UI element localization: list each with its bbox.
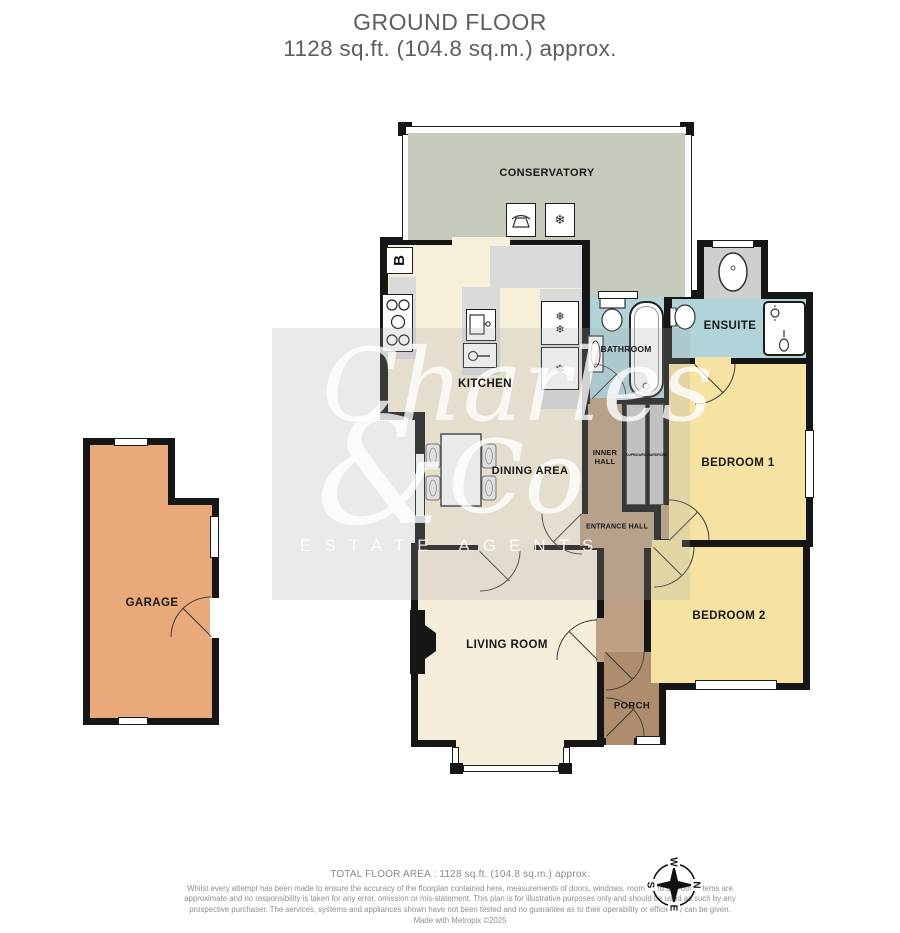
label-living-room: LIVING ROOM (466, 639, 548, 651)
opening-living-hall (596, 618, 604, 662)
counter-top (490, 246, 582, 288)
washer-glyph (509, 209, 533, 231)
door-arc (606, 652, 644, 690)
window-bedroom2-bottom (695, 680, 777, 690)
window-porch-bottom (636, 736, 661, 745)
label-kitchen: KITCHEN (458, 378, 512, 390)
label-bedroom1: BEDROOM 1 (701, 457, 774, 469)
opening-conservatory-kitchen (452, 237, 510, 246)
bay-window-floor (459, 747, 563, 765)
wall-bay-nub-right (559, 763, 572, 774)
snowflake-icon: ❄ (555, 311, 564, 322)
plan-title: GROUND FLOOR 1128 sq.ft. (104.8 sq.m.) a… (0, 9, 900, 62)
sink-icon (719, 253, 747, 291)
watermark-ampersand: & (316, 398, 448, 546)
opening-porch-front (606, 738, 634, 745)
window-bay-bottom (463, 765, 559, 772)
label-inner-hall: INNER HALL (586, 448, 624, 466)
window-bathroom-top (598, 291, 638, 299)
window-ensuite-top (712, 240, 754, 248)
toilet-icon (675, 305, 695, 329)
compass-west: W (668, 857, 679, 867)
label-conservatory: CONSERVATORY (499, 167, 594, 179)
label-ensuite: ENSUITE (704, 320, 757, 332)
title-area: 1128 sq.ft. (104.8 sq.m.) approx. (0, 36, 900, 62)
compass-south: S (645, 882, 656, 889)
door-arc (557, 620, 597, 660)
fireplace-icon (410, 610, 438, 674)
floor-plan-page: GROUND FLOOR 1128 sq.ft. (104.8 sq.m.) a… (0, 0, 900, 933)
conservatory-freezer-icon: ❄ (545, 203, 575, 237)
boiler-icon: B (386, 247, 413, 274)
window-garage-right (210, 516, 219, 558)
watermark-subtitle: ESTATE AGENTS (300, 536, 606, 556)
label-dining-area: DINING AREA (492, 465, 569, 477)
label-garage: GARAGE (126, 597, 179, 609)
compass-east: E (668, 905, 679, 912)
label-porch: PORCH (614, 701, 650, 712)
room-garage-floor-a (90, 445, 168, 718)
toilet-cistern (600, 298, 625, 308)
watermark-word2: Co (448, 428, 585, 528)
label-bathroom: BATHROOM (600, 344, 651, 354)
boiler-letter: B (391, 255, 408, 266)
opening-bay (456, 738, 564, 747)
compass-rose: W N E S (643, 854, 705, 916)
window-garage-bottom (118, 717, 148, 725)
compass-north: N (691, 881, 702, 888)
window-bedroom1-right (805, 430, 814, 498)
snowflake-icon: ❄ (555, 214, 566, 227)
label-wardrobe: WARDROBE (647, 453, 668, 457)
label-entrance-hall: ENTRANCE HALL (586, 524, 648, 531)
window-garage-top (114, 438, 148, 446)
metropix-credit: Made with Metropix ©2025 (150, 916, 770, 925)
label-bedroom2: BEDROOM 2 (692, 610, 765, 622)
wall-bay-nub-left (450, 763, 463, 774)
title-floor: GROUND FLOOR (0, 9, 900, 36)
washing-machine-icon (506, 203, 536, 237)
label-cupboard: CUPBOARD (626, 453, 646, 457)
opening-garage-door (210, 598, 219, 638)
